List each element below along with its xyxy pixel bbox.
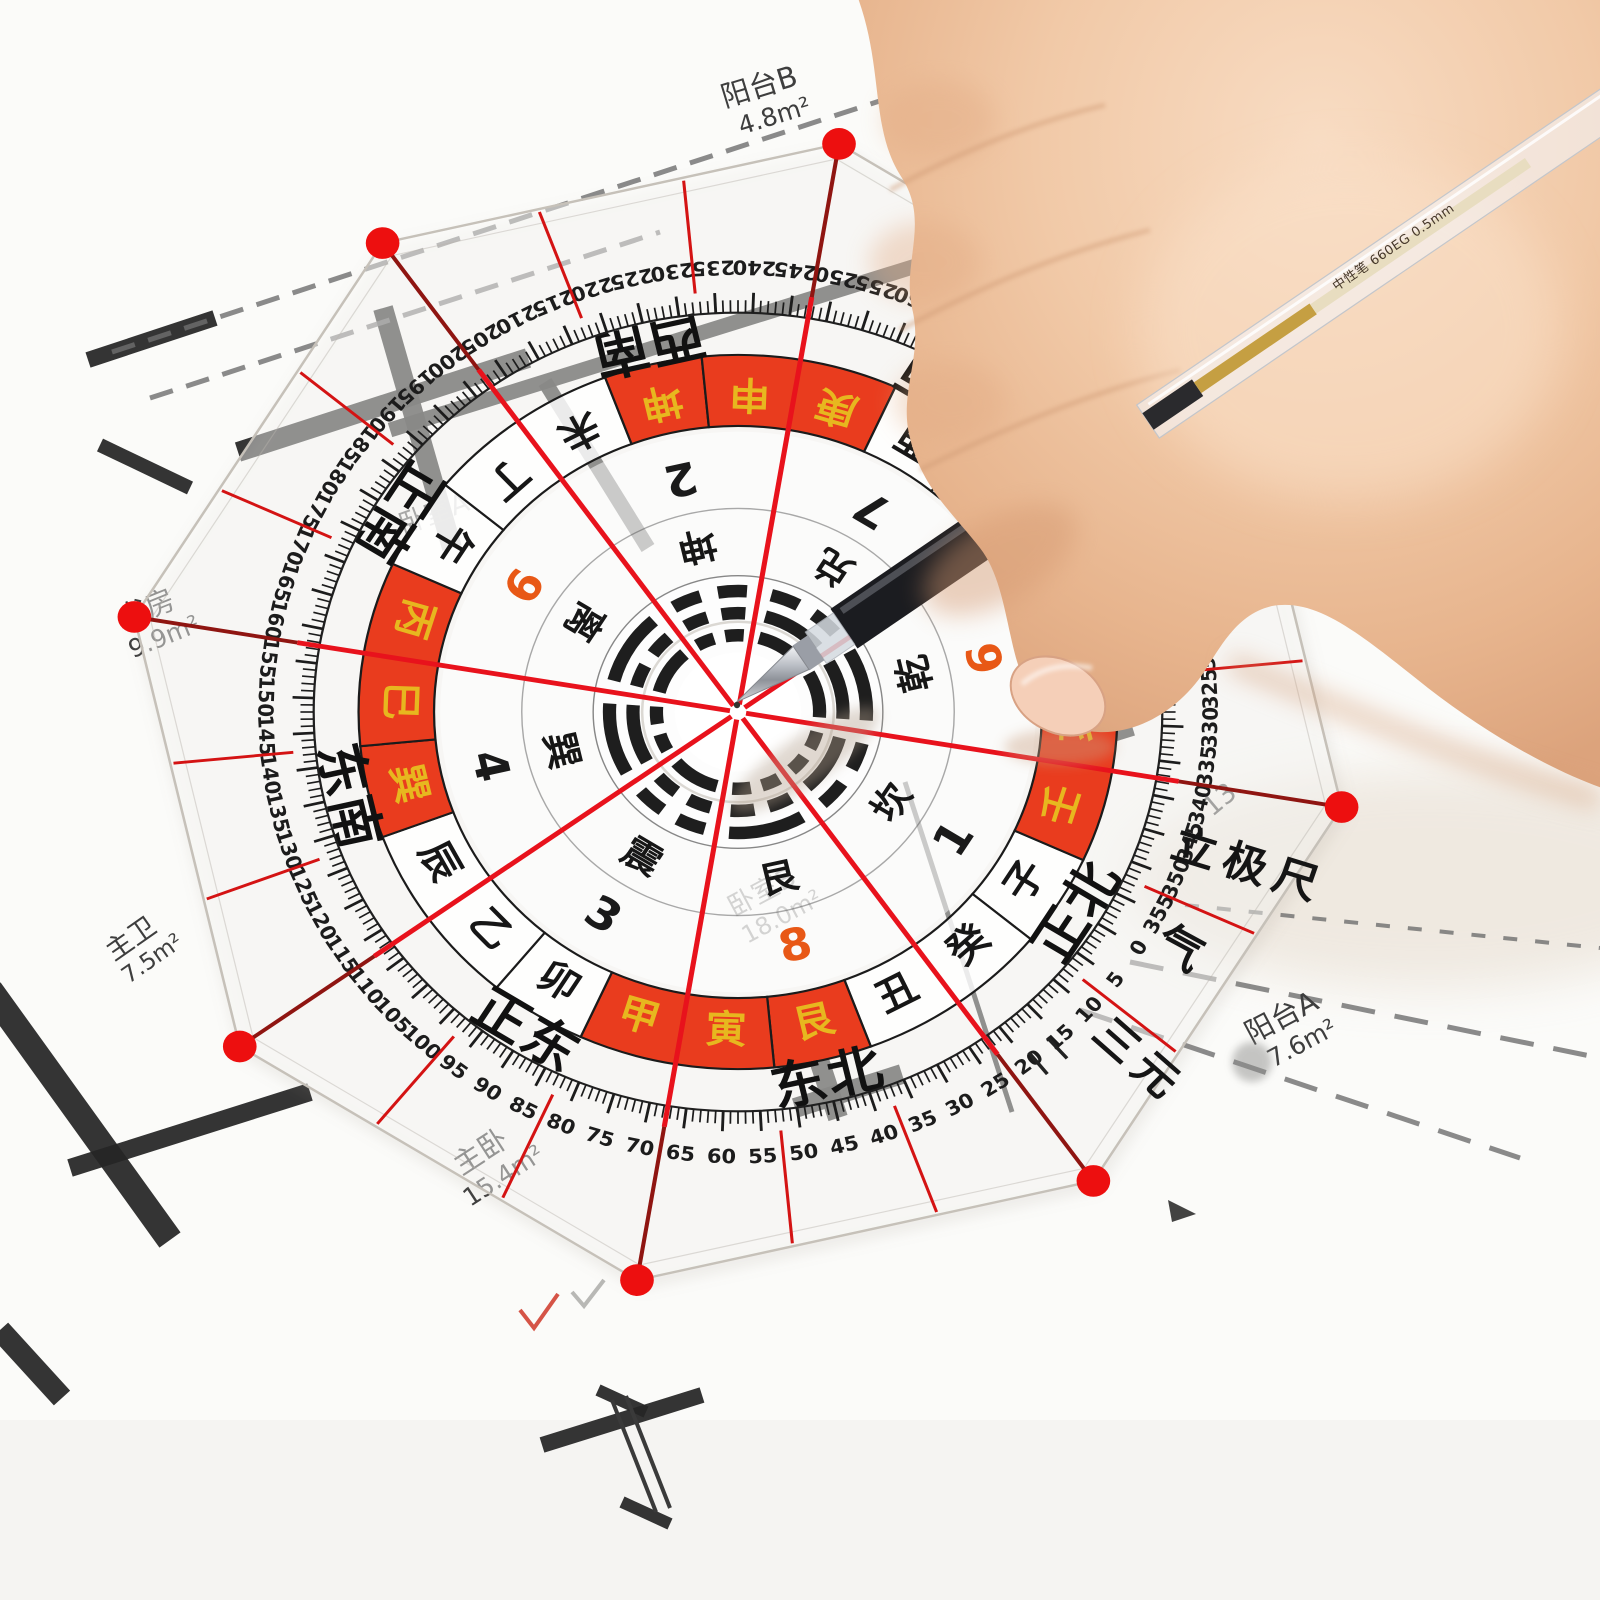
tick-major (293, 733, 314, 734)
tick-major (760, 1111, 761, 1131)
trigram-line-yin (689, 799, 711, 807)
degree-label: 50 (788, 1139, 820, 1166)
trigram-line-yin (718, 591, 747, 593)
tick-minor (768, 301, 769, 313)
degree-label: 245 (772, 257, 818, 285)
tick-minor (708, 1110, 709, 1122)
degree-label: 60 (707, 1144, 737, 1168)
trigram-line-yin (685, 617, 707, 626)
tick-major (715, 293, 716, 313)
tick-minor (723, 300, 724, 312)
degree-label: 55 (748, 1144, 778, 1169)
trigram-line-yin (637, 666, 646, 687)
tick-major (753, 293, 754, 313)
vertex-red-dot (822, 128, 856, 160)
vertex-red-dot (223, 1031, 257, 1063)
tick-minor (700, 1110, 701, 1122)
degree-label: 330 (1197, 707, 1223, 749)
tick-minor (775, 302, 776, 314)
photo-scene: 阳台B4.8m²卧室A书房9.9m²主卫7.5m²主卧15.4m²卧室B18.0… (0, 0, 1600, 1600)
mountain-label: 巳 (376, 681, 425, 721)
degree-label: 150 (253, 676, 279, 718)
tick-minor (302, 676, 315, 677)
paper-vignette (0, 1420, 1600, 1600)
ruler-hole (1232, 1042, 1272, 1082)
trigram-line-yin (697, 639, 714, 646)
tick-minor (775, 1110, 776, 1122)
vertex-red-dot (1077, 1165, 1111, 1197)
tick-minor (302, 747, 315, 748)
tick-minor (708, 301, 709, 313)
degree-label: 235 (691, 255, 736, 280)
mountain-label: 申 (729, 371, 771, 417)
tick-minor (760, 301, 761, 313)
knuckle-shading (869, 222, 981, 302)
degree-label: 155 (254, 636, 284, 680)
tick-minor (768, 1110, 769, 1122)
mountain-label: 寅 (705, 1007, 747, 1053)
vertex-red-dot (366, 227, 400, 259)
feng-shui-ruler-photo: 阳台B4.8m²卧室A书房9.9m²主卫7.5m²主卧15.4m²卧室B18.0… (0, 0, 1600, 1600)
vertex-red-dot (620, 1264, 654, 1296)
trigram-line-yin (725, 635, 743, 636)
trigram-line-yin (660, 734, 667, 750)
trigram-line-yin (722, 613, 746, 614)
degree-label: 145 (253, 714, 280, 756)
tick-minor (301, 690, 314, 691)
tick-minor (753, 1111, 754, 1123)
vertex-red-dot (118, 601, 152, 633)
degree-label: 335 (1192, 744, 1222, 788)
tick-minor (1162, 733, 1175, 734)
pen-point (734, 702, 740, 708)
tick-minor (301, 683, 314, 684)
tick-major (722, 1111, 723, 1131)
tick-major (1162, 726, 1183, 727)
trigram-line-yin (656, 707, 657, 724)
vertex-red-dot (1325, 791, 1359, 823)
tick-minor (715, 1111, 716, 1123)
tick-minor (1161, 740, 1174, 741)
tick-minor (700, 302, 701, 314)
tick-minor (1161, 747, 1174, 748)
degree-label: 240 (732, 255, 776, 280)
tick-minor (301, 740, 314, 741)
knuckle-shading (894, 362, 1006, 442)
hand-highlight (1140, 160, 1560, 500)
tick-major (293, 697, 314, 698)
degree-label: 65 (665, 1140, 697, 1166)
